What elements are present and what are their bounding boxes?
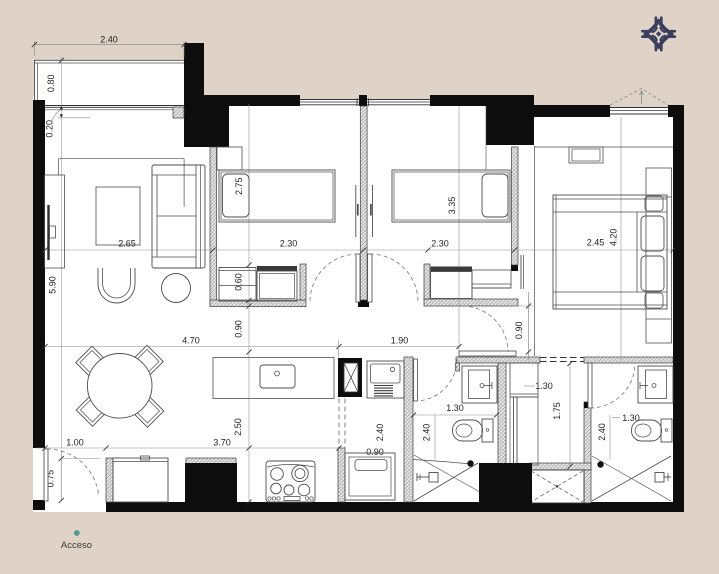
svg-text:0.60: 0.60 [233,273,243,291]
svg-text:0.20: 0.20 [44,120,54,138]
svg-text:2.40: 2.40 [100,35,118,45]
svg-text:2.65: 2.65 [118,239,136,249]
svg-text:2.40: 2.40 [422,424,432,442]
svg-text:3.70: 3.70 [213,438,231,448]
svg-text:4.70: 4.70 [182,336,200,346]
svg-text:Acceso: Acceso [61,540,92,551]
svg-text:4.20: 4.20 [609,229,619,247]
svg-text:1.75: 1.75 [552,402,562,420]
svg-text:1.90: 1.90 [391,336,409,346]
svg-text:5.90: 5.90 [48,276,58,294]
svg-text:0.90: 0.90 [233,320,243,338]
svg-text:2.75: 2.75 [234,177,244,195]
svg-text:2.45: 2.45 [587,238,605,248]
svg-text:2.50: 2.50 [233,418,243,436]
svg-text:0.80: 0.80 [46,75,56,93]
svg-text:1.00: 1.00 [66,438,84,448]
svg-text:1.30: 1.30 [622,413,640,423]
svg-text:0.90: 0.90 [514,322,524,340]
svg-text:2.40: 2.40 [597,423,607,441]
svg-text:2.30: 2.30 [280,239,298,249]
svg-text:2.40: 2.40 [375,424,385,442]
svg-text:2.30: 2.30 [431,239,449,249]
svg-text:3.35: 3.35 [447,197,457,215]
svg-text:0.90: 0.90 [366,447,384,457]
svg-text:1.30: 1.30 [446,403,464,413]
